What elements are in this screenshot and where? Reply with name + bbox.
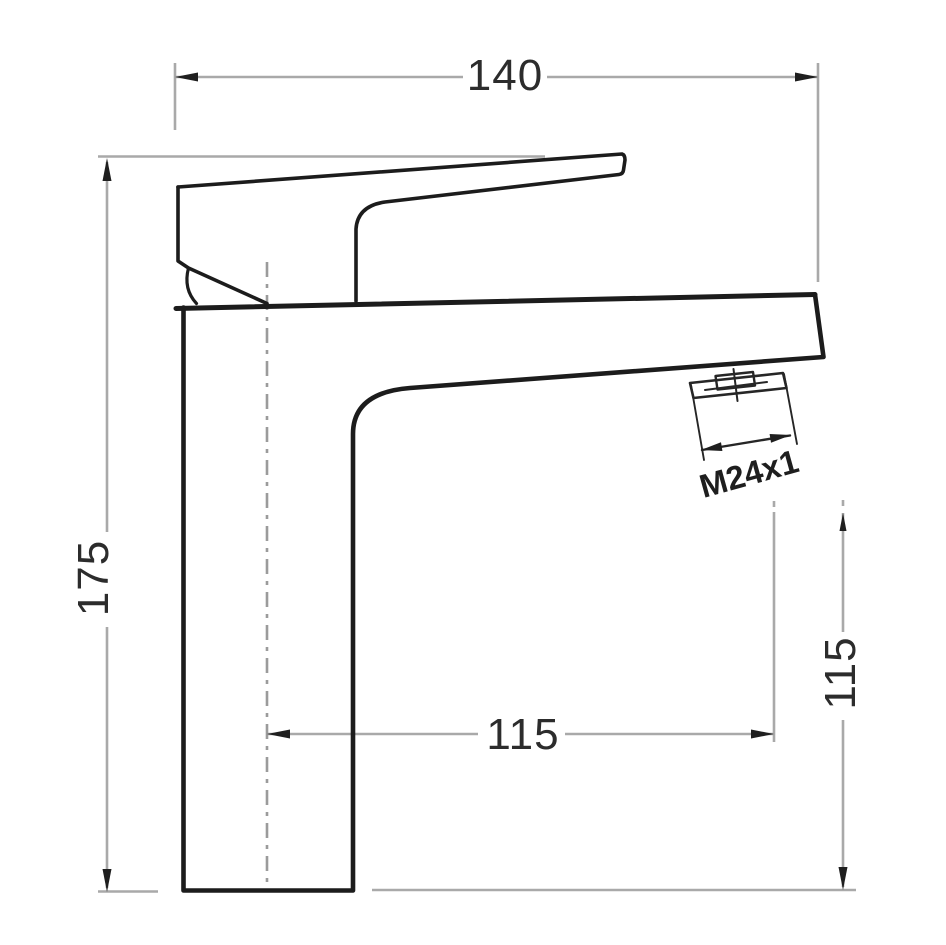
thread-ext-right: [784, 374, 797, 444]
arrow-reach-left: [267, 730, 290, 739]
technical-drawing: 140 175 115 115 M24x1: [0, 0, 946, 945]
arrow-outlet-top: [840, 513, 847, 531]
dim-reach-label: 115: [486, 710, 559, 759]
arrow-thread-right: [770, 434, 791, 443]
faucet-dimension-diagram: 140 175 115 115 M24x1: [0, 0, 946, 945]
dim-height-label: 175: [69, 540, 118, 616]
arrow-height-bottom: [103, 869, 112, 892]
arrow-outlet-bottom: [839, 867, 848, 890]
arrow-width-left: [175, 73, 198, 82]
arrow-thread-left: [701, 442, 722, 451]
lever-handle-front: [178, 187, 267, 304]
arrow-reach-right: [751, 730, 774, 739]
dim-width-label: 140: [467, 51, 543, 100]
faucet-body: [184, 295, 824, 891]
spout-top-edge: [176, 295, 815, 309]
dim-outlet-height-label: 115: [816, 636, 865, 709]
lever-handle: [178, 154, 625, 301]
arrow-height-top: [103, 158, 112, 181]
lever-pivot-arc: [187, 268, 197, 304]
aerator-thread-label: M24x1: [695, 442, 802, 505]
arrow-width-right: [795, 73, 818, 82]
faucet-outline: [176, 154, 824, 891]
